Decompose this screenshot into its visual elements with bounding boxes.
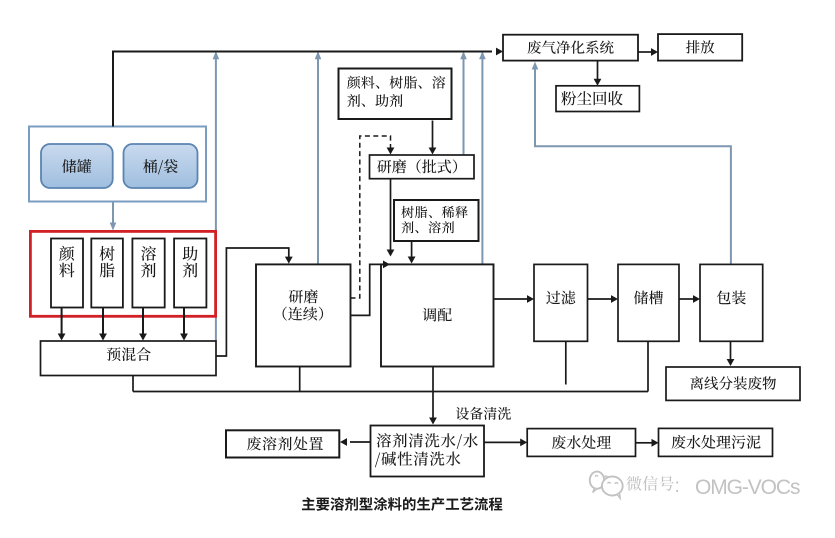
svg-text::: : [675,476,680,497]
svg-text:OMG-VOCs: OMG-VOCs [695,476,800,499]
